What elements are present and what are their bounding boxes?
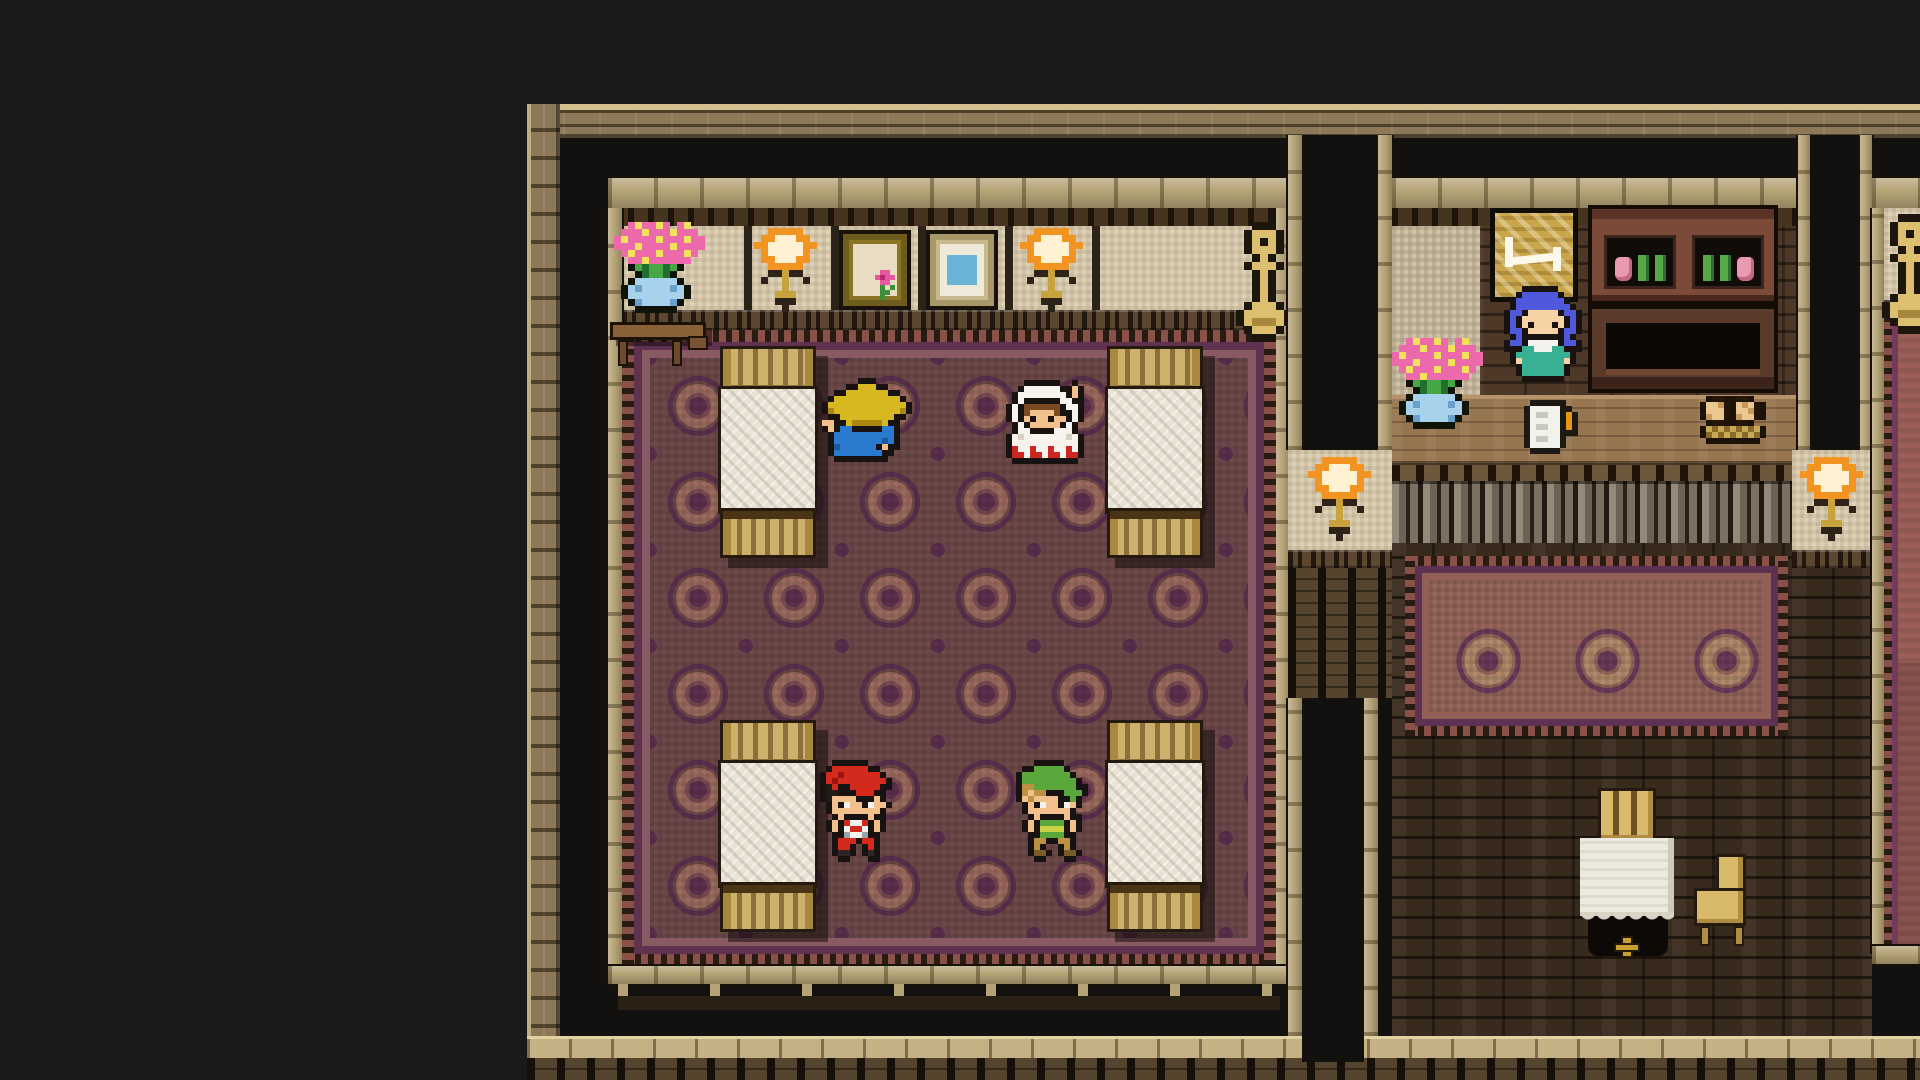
bed-bottom-right[interactable] — [1105, 720, 1205, 932]
divider-meander-trim — [1288, 550, 1392, 568]
chair-leg — [1700, 926, 1710, 946]
wall-panel-divider — [831, 226, 839, 310]
framed-blue-picture[interactable] — [926, 230, 998, 310]
bed-footboard — [720, 882, 816, 932]
rug-fringe-right — [1778, 556, 1788, 736]
carpet-fringe-right — [1264, 330, 1276, 966]
bed-bottom-left[interactable] — [718, 720, 818, 932]
bed-mattress — [718, 386, 818, 514]
counter-front — [1392, 481, 1798, 543]
blue-square-motif — [947, 255, 977, 285]
counter-hutch — [1588, 305, 1778, 393]
framed-flower-picture[interactable] — [839, 230, 911, 310]
divider-floor — [1792, 568, 1872, 1036]
counter-front-trim — [1392, 465, 1798, 481]
lobby-rug — [1405, 556, 1788, 736]
outer-wall-left — [527, 104, 560, 1080]
rug-fringe-bottom — [1405, 726, 1788, 736]
gold-trinket[interactable] — [1614, 936, 1640, 958]
cloth-table[interactable] — [1580, 838, 1674, 916]
shelf-leg — [618, 340, 628, 366]
rug-fringe-left — [1405, 556, 1415, 736]
green-bottle — [1703, 255, 1714, 281]
rug-border-purple — [1415, 566, 1778, 726]
carpet-fringe-bottom — [622, 954, 1276, 966]
lobby-wall-top-beam — [1392, 178, 1798, 208]
rug-fringe-top — [1405, 556, 1788, 566]
divider-beam — [1288, 698, 1302, 1036]
east-wall-top-beam — [1872, 178, 1920, 208]
green-bottle — [1638, 255, 1649, 281]
bed-mattress — [1105, 386, 1205, 514]
bed-top-left[interactable] — [718, 346, 818, 558]
picture-mat — [940, 244, 984, 296]
east-wall-bottom-beam — [1872, 946, 1920, 964]
wall-meander-trim — [622, 310, 1276, 330]
bed-footboard — [720, 508, 816, 558]
wall-panel-divider — [1005, 226, 1013, 310]
chair-leg — [1734, 926, 1744, 946]
game-screen — [0, 0, 1920, 1080]
bedroom-wall-posts — [618, 984, 1280, 996]
divider-beam — [1288, 135, 1302, 450]
bed-symbol — [1507, 252, 1559, 265]
east-carpet-fringe — [1884, 316, 1892, 946]
bed-footboard — [1107, 508, 1203, 558]
east-room — [1872, 178, 1920, 1036]
bed-symbol — [1553, 247, 1561, 271]
carpet-fringe-top — [622, 330, 1276, 342]
corridor-through-wall — [1302, 1036, 1364, 1062]
trinket-part — [1614, 943, 1640, 952]
bedroom-wall-top-beam — [608, 178, 1290, 208]
divider-beam — [1798, 135, 1810, 450]
bed-top-right[interactable] — [1105, 346, 1205, 558]
chair-behind-table[interactable] — [1598, 788, 1656, 842]
divider-beam — [1378, 135, 1392, 450]
room-divider-left — [1288, 135, 1392, 1036]
cabinet-window — [1604, 235, 1676, 289]
east-carpet-field — [1898, 316, 1920, 663]
tablecloth-scallop — [1580, 912, 1674, 928]
potion-cabinet[interactable] — [1588, 205, 1778, 305]
bedroom-wall-shadow — [618, 996, 1280, 1010]
divider-brick — [1288, 568, 1392, 698]
outer-wall-top — [527, 104, 1920, 138]
rug-field — [1429, 580, 1764, 712]
green-bottle — [1720, 255, 1731, 281]
divider-void — [1810, 135, 1860, 460]
chair-right-seat[interactable] — [1694, 888, 1746, 926]
bedroom-wall-bottom-beam — [608, 966, 1290, 984]
carpet-fringe-left — [622, 330, 634, 966]
wall-panel-divider — [744, 226, 752, 310]
bed-mattress — [718, 760, 818, 888]
pink-jar — [1615, 257, 1632, 281]
shelf-bracket — [688, 336, 708, 350]
shelf-leg — [672, 340, 682, 366]
wall-panel-divider — [918, 226, 926, 310]
cabinet-window — [1692, 235, 1764, 289]
divider-beam — [1860, 135, 1872, 450]
pink-jar — [1737, 257, 1754, 281]
outer-wall-bottom-light — [527, 1036, 1920, 1058]
divider-meander-trim — [1792, 550, 1872, 568]
picture-mat — [853, 244, 897, 296]
divider-beam — [1364, 698, 1378, 1036]
divider-void — [1302, 135, 1378, 465]
outer-wall-bottom-dark — [527, 1058, 1920, 1080]
bed-footboard — [1107, 882, 1203, 932]
room-divider-right — [1792, 135, 1872, 1036]
east-carpet-field-lower — [1898, 663, 1920, 947]
hutch-opening — [1606, 323, 1760, 369]
wall-panel-divider — [1092, 226, 1100, 310]
east-carpet — [1884, 316, 1920, 946]
divider-corridor[interactable] — [1302, 698, 1364, 1036]
rug-border-mauve — [1422, 573, 1771, 719]
bed-mattress — [1105, 760, 1205, 888]
green-bottle — [1655, 255, 1666, 281]
